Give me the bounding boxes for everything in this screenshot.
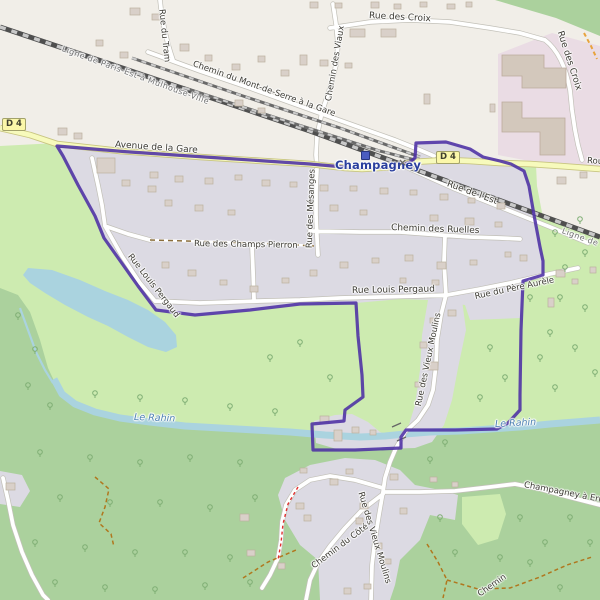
building (258, 56, 265, 62)
map-canvas[interactable]: Ligne de Paris-Est à Mulhouse-Ville Lign… (0, 0, 600, 600)
building (250, 286, 258, 292)
building (240, 514, 249, 521)
building (340, 262, 348, 268)
building (420, 2, 427, 7)
building (262, 180, 270, 186)
building (247, 550, 255, 556)
building (424, 94, 430, 104)
building (220, 280, 227, 285)
building (346, 469, 353, 474)
building (490, 104, 495, 112)
building (345, 63, 352, 68)
building (195, 205, 203, 211)
building (58, 128, 67, 135)
building (430, 477, 437, 482)
railway-station-icon (361, 151, 370, 160)
building (335, 3, 342, 8)
building (162, 262, 169, 268)
building (235, 175, 242, 180)
building (405, 255, 413, 261)
building (430, 215, 438, 221)
building (188, 270, 196, 276)
building (148, 186, 156, 192)
building (180, 44, 189, 51)
building (278, 563, 285, 569)
building (370, 430, 376, 435)
building (352, 427, 359, 433)
building (394, 4, 401, 9)
building (470, 260, 477, 265)
building (296, 503, 304, 509)
building (364, 584, 371, 589)
building (334, 430, 342, 441)
building (97, 158, 115, 173)
building (300, 55, 307, 65)
building (350, 186, 357, 191)
road-label-rue-louis-pergaud: Rue Louis Pergaud (352, 286, 435, 296)
station-label-champagney: Champagney (335, 160, 421, 172)
building (590, 267, 596, 273)
building (360, 210, 367, 215)
building (381, 29, 396, 37)
building (235, 100, 243, 106)
building (330, 479, 338, 485)
building (74, 133, 82, 139)
route-badge-d4-left: D 4 (2, 118, 26, 131)
building (557, 177, 566, 184)
building (466, 2, 472, 7)
building (130, 8, 140, 15)
road-label-route-partial: Route (587, 157, 600, 167)
building (300, 468, 307, 473)
building (281, 70, 289, 76)
building (520, 255, 527, 261)
building (452, 482, 458, 487)
building (232, 64, 240, 70)
building (122, 180, 130, 186)
building (120, 52, 128, 58)
building (175, 176, 183, 182)
building (556, 270, 565, 277)
route-badge-d4-mid: D 4 (436, 151, 460, 164)
building (497, 203, 505, 209)
building (448, 310, 456, 316)
building (320, 60, 328, 66)
building (205, 55, 212, 61)
building (150, 172, 158, 178)
building (330, 205, 338, 211)
building (580, 172, 587, 178)
building (372, 258, 379, 263)
building (6, 483, 15, 490)
building (205, 178, 213, 184)
building (400, 508, 407, 514)
building (344, 588, 351, 594)
river-label-le-rahin-left: Le Rahin (134, 413, 176, 424)
building (282, 278, 289, 283)
building (437, 262, 446, 269)
map-graphics (0, 0, 600, 600)
building (572, 279, 578, 284)
building (371, 2, 379, 8)
building (548, 298, 554, 307)
building (310, 270, 317, 276)
river-label-le-rahin-right: Le Rahin (495, 418, 537, 430)
building (400, 278, 406, 283)
building (304, 515, 311, 521)
building (447, 4, 455, 9)
building (495, 222, 502, 227)
building (290, 182, 297, 187)
building (440, 194, 448, 200)
building (410, 190, 417, 195)
building (350, 29, 365, 37)
building (96, 40, 103, 46)
building (258, 108, 265, 113)
building (310, 2, 318, 8)
building (505, 252, 511, 257)
building (320, 185, 328, 191)
building (390, 474, 398, 480)
building (228, 210, 235, 215)
level-crossing-icon: × (398, 157, 407, 168)
road-label-rue-des-champs-pierron: Rue des Champs Pierron (194, 240, 298, 250)
building (165, 200, 172, 206)
building (380, 188, 388, 194)
building (465, 218, 474, 225)
